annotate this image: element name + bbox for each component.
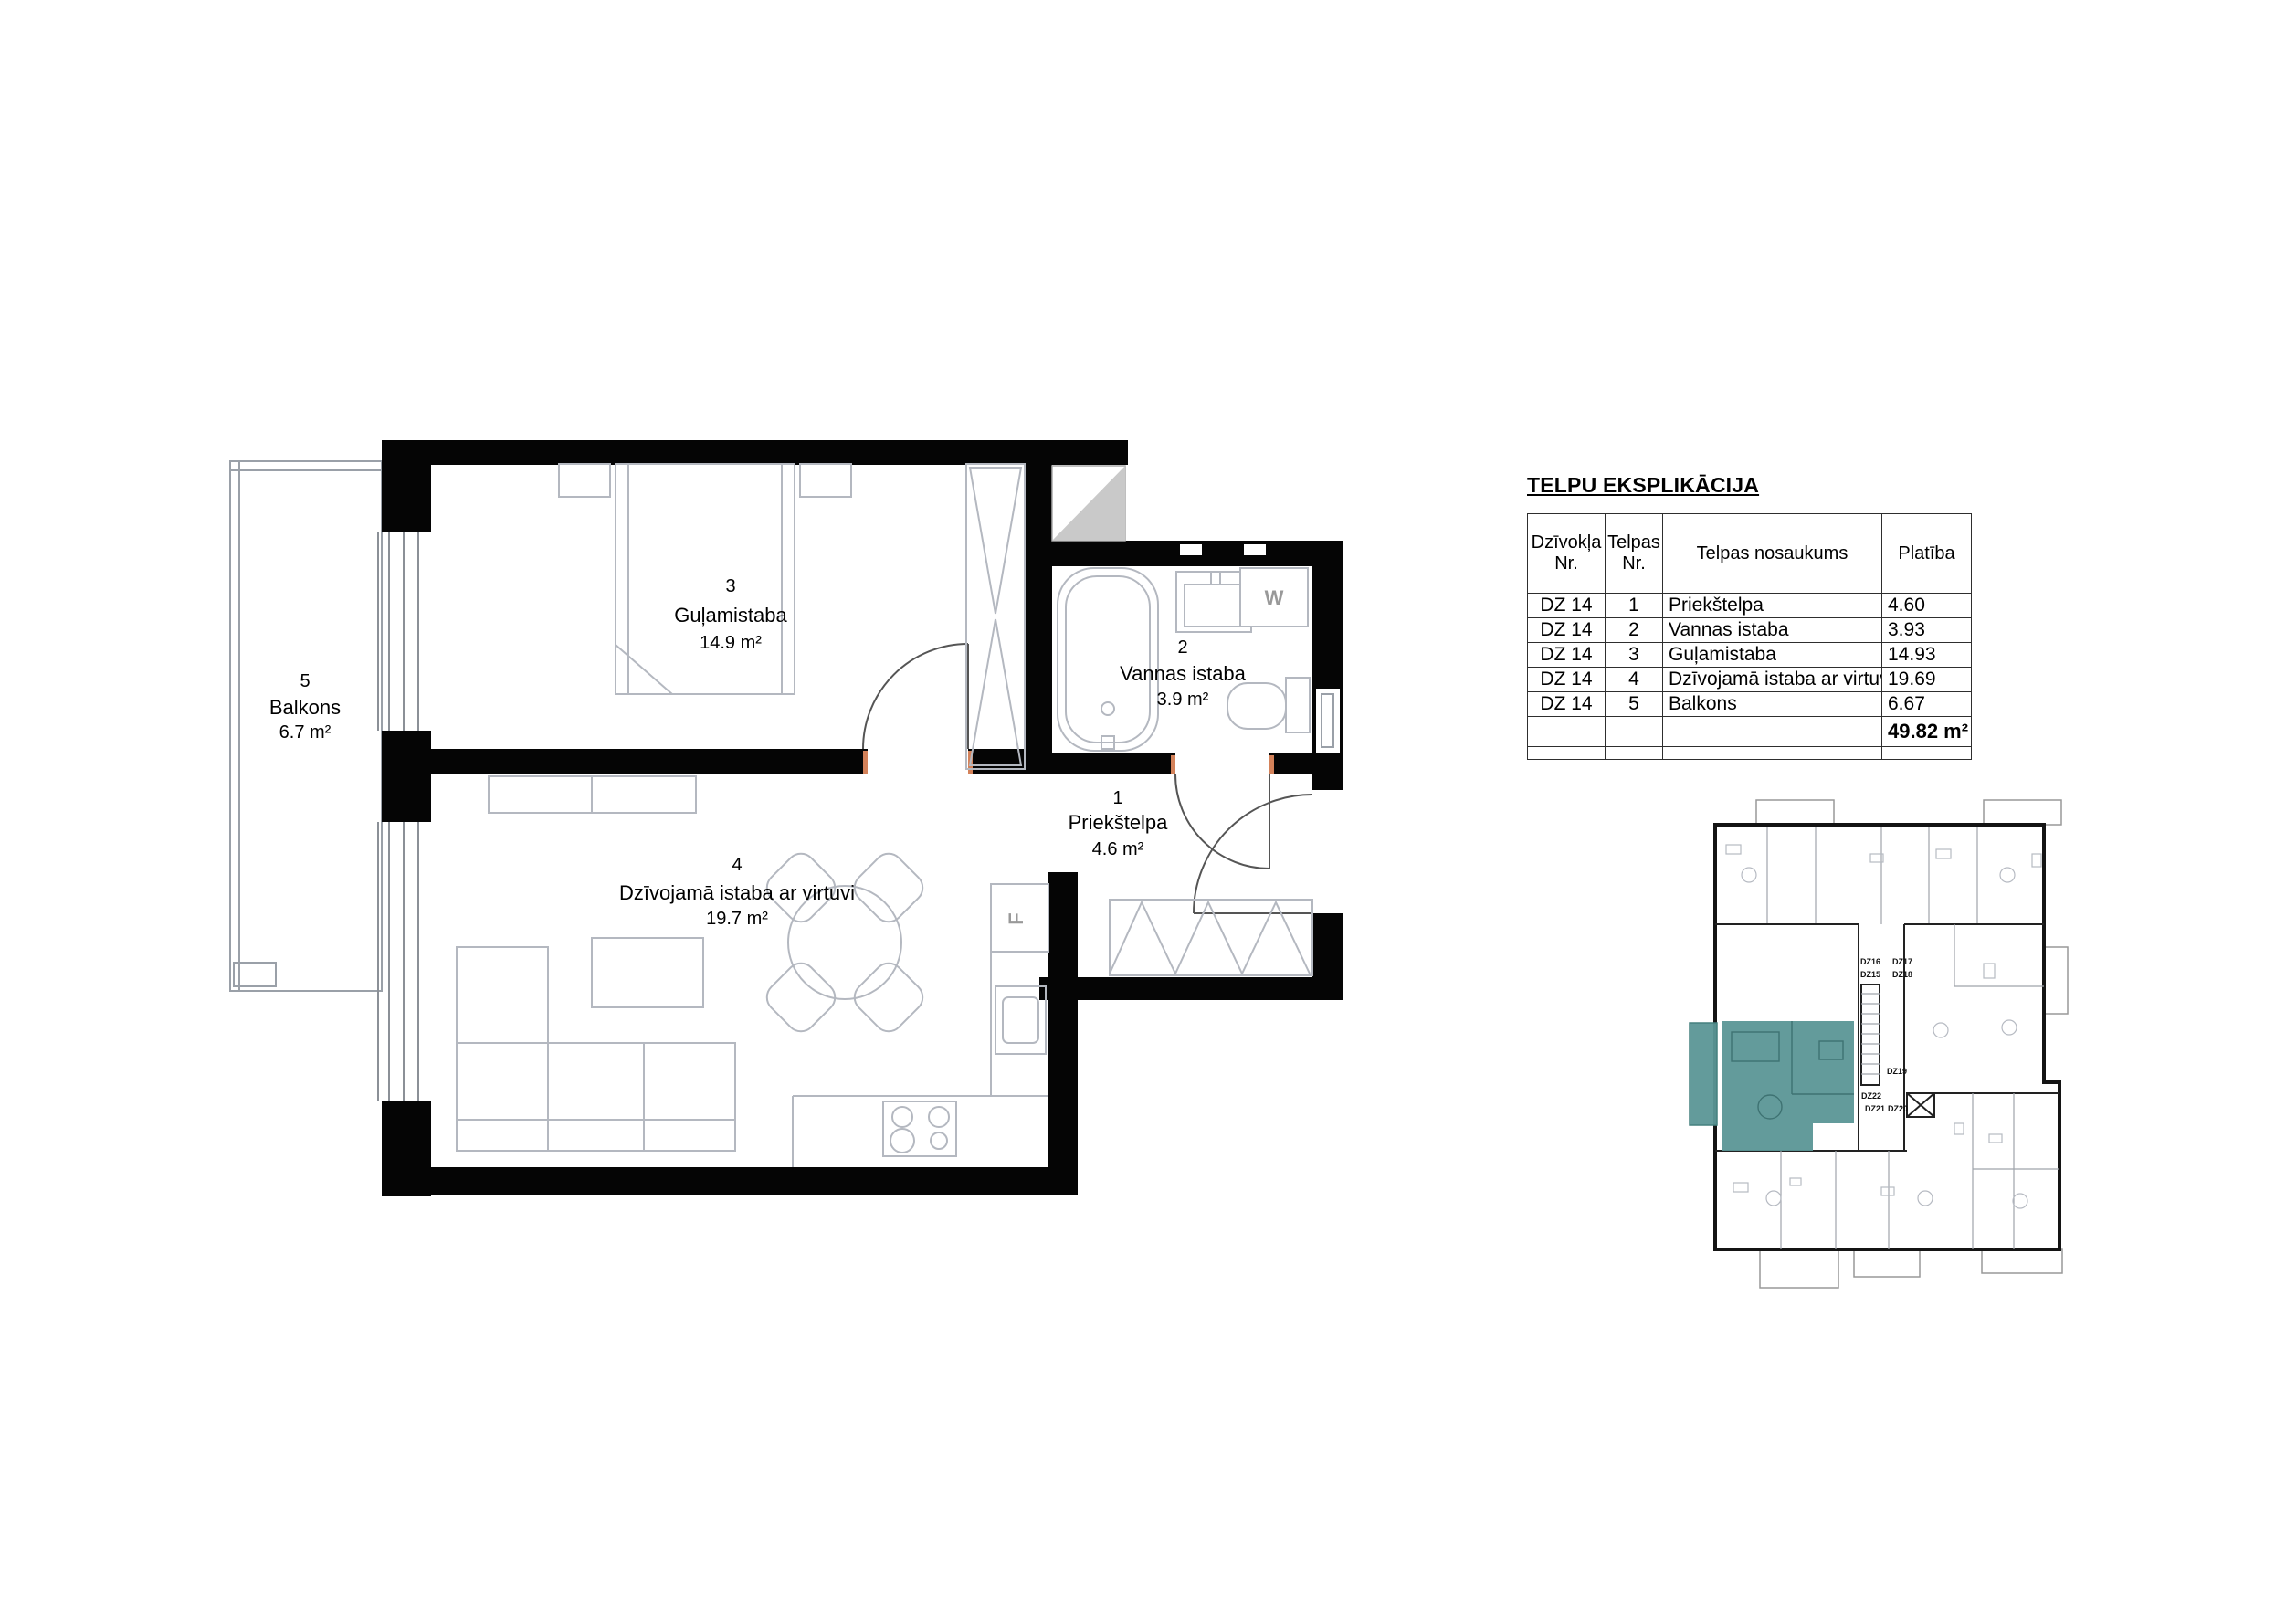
chaise xyxy=(457,947,548,1043)
apartment-code: DZ19 xyxy=(1887,1067,1907,1076)
cell-name: Priekštelpa xyxy=(1663,594,1882,618)
svg-text:4: 4 xyxy=(732,855,742,875)
floorplan-sheet: F W 1 Priekštelpa 4.6 m² xyxy=(0,0,2296,1622)
cell-empty xyxy=(1606,747,1663,760)
table-row: DZ 14 3 Guļamistaba 14.93 xyxy=(1528,643,1972,668)
apartment-code: DZ22 xyxy=(1861,1091,1881,1101)
apartment-code: DZ16 xyxy=(1860,957,1880,966)
svg-text:3: 3 xyxy=(725,576,735,596)
cell-apartment: DZ 14 xyxy=(1528,594,1606,618)
coffee-table xyxy=(592,938,703,1007)
svg-text:Guļamistaba: Guļamistaba xyxy=(674,604,787,627)
cell-empty xyxy=(1606,717,1663,747)
dining-set xyxy=(761,848,929,1037)
table-row: DZ 14 4 Dzīvojamā istaba ar virtuvi 19.6… xyxy=(1528,668,1972,692)
svg-text:6.7 m²: 6.7 m² xyxy=(279,722,332,743)
kitchen: F xyxy=(793,884,1048,1167)
apartment-floorplan: F W 1 Priekštelpa 4.6 m² xyxy=(230,440,1343,1196)
svg-text:19.7 m²: 19.7 m² xyxy=(706,909,768,929)
fridge-label: F xyxy=(1005,912,1027,924)
entrance-door-arc xyxy=(1194,795,1312,913)
svg-text:14.9 m²: 14.9 m² xyxy=(700,633,762,653)
wall-niche xyxy=(1244,544,1266,555)
overview-plan: DZ16 DZ17 DZ15 DZ18 DZ19 DZ22 DZ21 DZ20 xyxy=(1690,800,2068,1288)
svg-text:Dzīvojamā istaba ar virtuvi: Dzīvojamā istaba ar virtuvi xyxy=(619,881,855,904)
svg-text:5: 5 xyxy=(300,671,310,691)
bathroom-door-arc xyxy=(1175,774,1269,869)
cell-area: 14.93 xyxy=(1882,643,1972,668)
explication-table: Dzīvokļa Nr. Telpas Nr. Telpas nosaukums… xyxy=(1527,513,1972,760)
cell-empty xyxy=(1663,747,1882,760)
cell-name: Balkons xyxy=(1663,692,1882,717)
empty-row xyxy=(1528,747,1972,760)
cell-room: 2 xyxy=(1606,618,1663,643)
header-apartment-nr: Dzīvokļa Nr. xyxy=(1528,514,1606,594)
svg-text:4.6 m²: 4.6 m² xyxy=(1092,839,1144,859)
cell-empty xyxy=(1528,717,1606,747)
svg-text:1: 1 xyxy=(1112,788,1122,808)
room-label-balkons: 5 Balkons 6.7 m² xyxy=(269,671,341,743)
bathroom-fixtures: W xyxy=(1058,568,1310,751)
cell-area: 19.69 xyxy=(1882,668,1972,692)
apartment-code: DZ15 xyxy=(1860,970,1880,979)
hall-closet xyxy=(1110,900,1312,975)
nightstand xyxy=(800,464,851,497)
svg-text:3.9 m²: 3.9 m² xyxy=(1157,690,1209,710)
table-row: DZ 14 1 Priekštelpa 4.60 xyxy=(1528,594,1972,618)
header-row: Dzīvokļa Nr. Telpas Nr. Telpas nosaukums… xyxy=(1528,514,1972,594)
cell-apartment: DZ 14 xyxy=(1528,668,1606,692)
header-room-name: Telpas nosaukums xyxy=(1663,514,1882,594)
walls xyxy=(382,440,1343,1196)
wardrobe xyxy=(966,464,1025,769)
cell-name: Dzīvojamā istaba ar virtuvi xyxy=(1663,668,1882,692)
cell-empty xyxy=(1663,717,1882,747)
toilet xyxy=(1227,683,1286,729)
svg-text:2: 2 xyxy=(1177,637,1187,658)
cell-room: 5 xyxy=(1606,692,1663,717)
toilet-tank xyxy=(1286,678,1310,732)
cell-area: 4.60 xyxy=(1882,594,1972,618)
cell-area: 3.93 xyxy=(1882,618,1972,643)
cell-room: 3 xyxy=(1606,643,1663,668)
cell-empty xyxy=(1528,747,1606,760)
apartment-code: DZ20 xyxy=(1888,1104,1908,1113)
right-wall-slot xyxy=(1316,689,1340,753)
cell-apartment: DZ 14 xyxy=(1528,692,1606,717)
room-label-priekstelpa: 1 Priekštelpa 4.6 m² xyxy=(1069,788,1169,859)
svg-text:Balkons: Balkons xyxy=(269,696,341,719)
table-row: DZ 14 5 Balkons 6.67 xyxy=(1528,692,1972,717)
cell-empty xyxy=(1882,747,1972,760)
sofa xyxy=(457,1043,735,1151)
apartment-code: DZ18 xyxy=(1892,970,1912,979)
apartment-code: DZ17 xyxy=(1892,957,1912,966)
cell-room: 4 xyxy=(1606,668,1663,692)
svg-text:Priekštelpa: Priekštelpa xyxy=(1069,811,1169,834)
table-row: DZ 14 2 Vannas istaba 3.93 xyxy=(1528,618,1972,643)
cell-name: Vannas istaba xyxy=(1663,618,1882,643)
cell-apartment: DZ 14 xyxy=(1528,618,1606,643)
highlight-balcony xyxy=(1690,1023,1717,1125)
cell-apartment: DZ 14 xyxy=(1528,643,1606,668)
cell-room: 1 xyxy=(1606,594,1663,618)
living-room-furniture xyxy=(457,776,929,1151)
cell-total-area: 49.82 m² xyxy=(1882,717,1972,747)
header-area: Platība xyxy=(1882,514,1972,594)
svg-text:Vannas istaba: Vannas istaba xyxy=(1120,662,1247,685)
apartment-code: DZ21 xyxy=(1865,1104,1885,1113)
bathtub xyxy=(1058,568,1158,751)
cell-area: 6.67 xyxy=(1882,692,1972,717)
cell-name: Guļamistaba xyxy=(1663,643,1882,668)
floorplan-drawing: F W 1 Priekštelpa 4.6 m² xyxy=(0,0,2296,1622)
bedroom-door-arc xyxy=(863,644,968,749)
nightstand xyxy=(559,464,610,497)
wall-niche xyxy=(1180,544,1202,555)
duct-shaft xyxy=(1052,466,1125,541)
washer-label: W xyxy=(1265,586,1284,609)
total-row: 49.82 m² xyxy=(1528,717,1972,747)
bed xyxy=(616,464,795,694)
header-room-nr: Telpas Nr. xyxy=(1606,514,1663,594)
explication-title: TELPU EKSPLIKĀCIJA xyxy=(1527,473,1759,498)
room-label-gulamistaba: 3 Guļamistaba 14.9 m² xyxy=(674,576,787,653)
bedroom-furniture xyxy=(559,464,1025,769)
